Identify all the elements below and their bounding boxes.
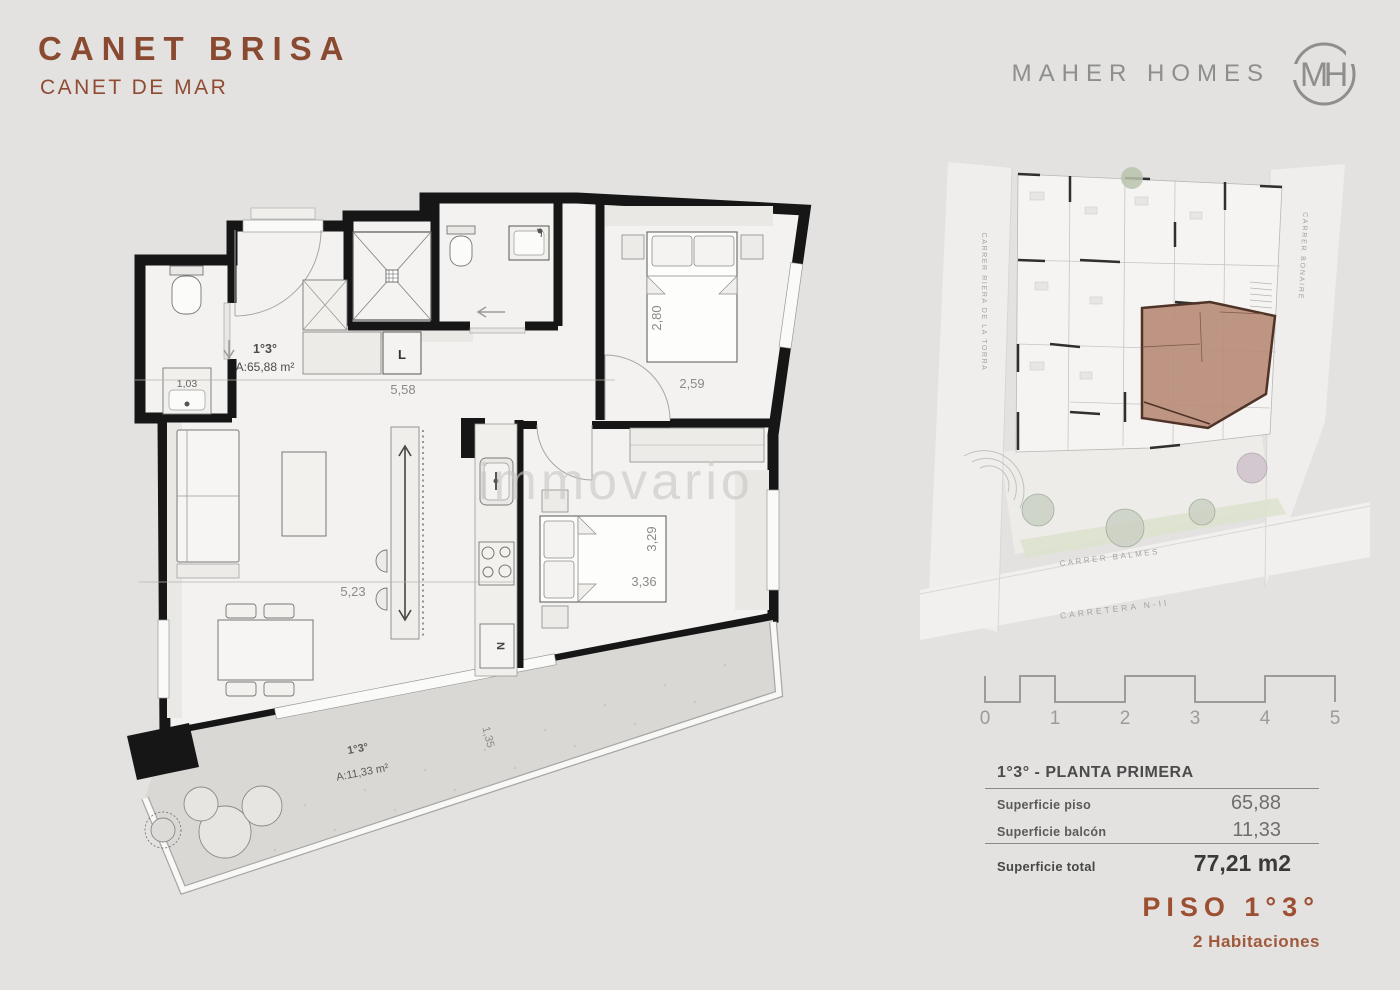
- row-value: 11,33: [1232, 819, 1281, 842]
- appliance-label: N: [494, 642, 506, 650]
- closet-label: L: [398, 347, 406, 362]
- total-value: 77,21 m2: [1194, 850, 1291, 877]
- shower-room: [353, 232, 431, 320]
- brand-logo-icon: M H: [1286, 36, 1362, 112]
- dim-bed1-width: 2,59: [679, 376, 704, 391]
- dim-living: 5,23: [340, 584, 365, 599]
- scale-label-3: 3: [1190, 708, 1201, 728]
- scale-bar-labels: 0 1 2 3 4 5: [980, 708, 1340, 728]
- page-title: CANET BRISA: [38, 30, 352, 68]
- scale-bar-line: [985, 676, 1335, 702]
- sofa: [177, 430, 239, 578]
- floor-plan: L N: [125, 190, 815, 900]
- table-total-row: Superficie total 77,21 m2: [985, 844, 1319, 878]
- rooms-subtitle: 2 Habitaciones: [1142, 932, 1320, 952]
- total-label: Superficie total: [997, 859, 1096, 874]
- table-row: Superficie balcón 11,33: [985, 816, 1319, 843]
- street-label-left: CARRER RIERA DE LA TORRA: [980, 233, 987, 372]
- coffee-table: [282, 452, 326, 536]
- page-subtitle: CANET DE MAR: [40, 76, 352, 100]
- brochure-page: CANET BRISA CANET DE MAR MAHER HOMES M H: [0, 0, 1400, 990]
- row-label: Superficie balcón: [997, 825, 1106, 839]
- site-plan-map: CARRER RIERA DE LA TORRA CARRER BONAIRE …: [920, 162, 1370, 642]
- scale-bar: 0 1 2 3 4 5: [980, 662, 1350, 728]
- apartment-unit-label: 1°3°: [253, 342, 277, 356]
- dim-bed2-depth: 3,29: [644, 526, 659, 551]
- scale-label-1: 1: [1050, 708, 1061, 728]
- floor-title: PISO 1°3°: [1142, 892, 1320, 923]
- sink-dim-label: 1,03: [177, 378, 198, 390]
- row-value: 65,88: [1231, 792, 1281, 815]
- row-label: Superficie piso: [997, 798, 1091, 812]
- brand-block: MAHER HOMES M H: [1012, 36, 1362, 112]
- brand-name: MAHER HOMES: [1012, 60, 1270, 88]
- apartment-area-label: A:65,88 m²: [236, 360, 295, 374]
- logo-letter-h: H: [1324, 56, 1349, 94]
- table-title: 1°3° - PLANTA PRIMERA: [997, 764, 1319, 782]
- scale-label-0: 0: [980, 708, 990, 728]
- entry-step: [251, 208, 315, 219]
- table-row: Superficie piso 65,88: [985, 789, 1319, 816]
- dim-bed1-depth: 2,80: [649, 305, 664, 330]
- dim-hall: 5,58: [390, 382, 415, 397]
- scale-label-5: 5: [1330, 708, 1341, 728]
- scale-label-4: 4: [1260, 708, 1271, 728]
- footer-block: PISO 1°3° 2 Habitaciones: [1142, 892, 1320, 952]
- scale-label-2: 2: [1120, 708, 1131, 728]
- title-block: CANET BRISA CANET DE MAR: [38, 30, 352, 100]
- surface-table: 1°3° - PLANTA PRIMERA Superficie piso 65…: [985, 764, 1319, 878]
- dim-bed2-width: 3,36: [631, 574, 656, 589]
- kitchen: N: [475, 424, 517, 676]
